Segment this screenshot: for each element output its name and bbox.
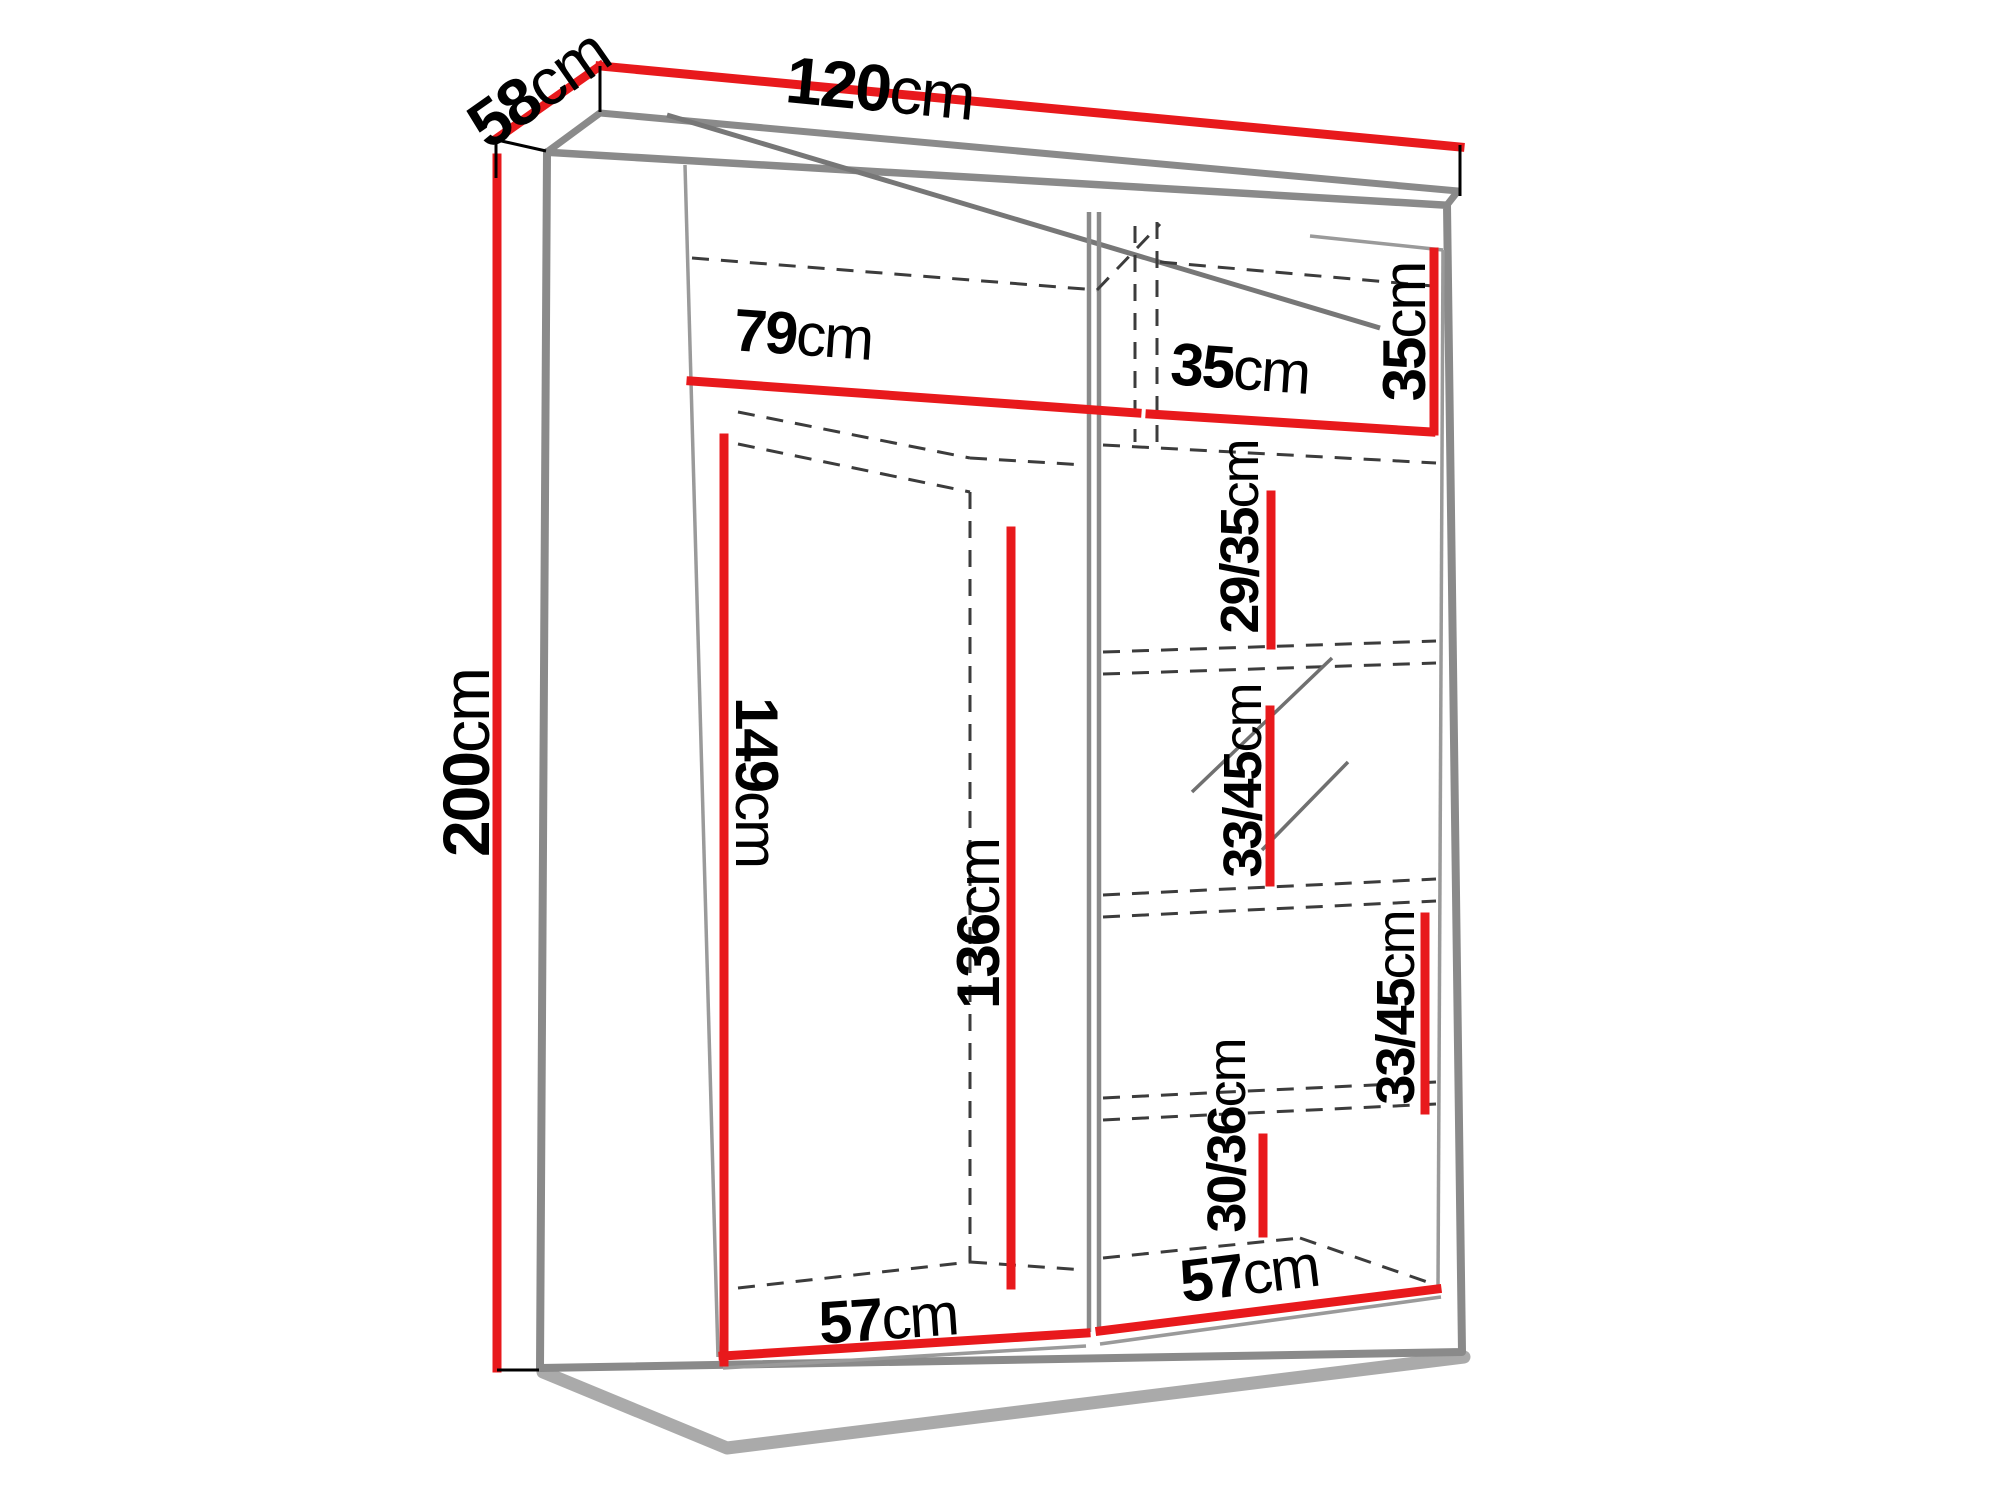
diagram-canvas: 58cm 120cm 200cm 79cm 35cm 35cm 149cm 13…: [0, 0, 2000, 1500]
dim-label-height: 200cm: [429, 669, 503, 857]
dim-label-left-height: 149cm: [724, 697, 791, 867]
wardrobe-dimension-diagram: 58cm 120cm 200cm 79cm 35cm 35cm 149cm 13…: [0, 0, 2000, 1500]
dim-label-top-left-width: 79cm: [731, 296, 874, 373]
front-panel: [540, 152, 1462, 1368]
cabinet-body: [540, 113, 1462, 1368]
dim-label-shelf-gap-1: 29/35cm: [1210, 440, 1270, 633]
dim-label-shelf-gap-2: 33/45cm: [1213, 684, 1273, 877]
dim-label-shelf-gap-3: 33/45cm: [1366, 911, 1426, 1104]
shadow: [543, 1357, 1464, 1448]
dim-label-top-height: 35cm: [1371, 263, 1438, 402]
dim-label-width: 120cm: [783, 42, 977, 134]
dim-label-shelf-gap-4: 30/36cm: [1197, 1039, 1257, 1232]
dim-label-inner-height: 136cm: [945, 839, 1012, 1009]
dim-label-bottom-left: 57cm: [816, 1280, 959, 1357]
dim-label-top-right-width: 35cm: [1168, 330, 1311, 407]
